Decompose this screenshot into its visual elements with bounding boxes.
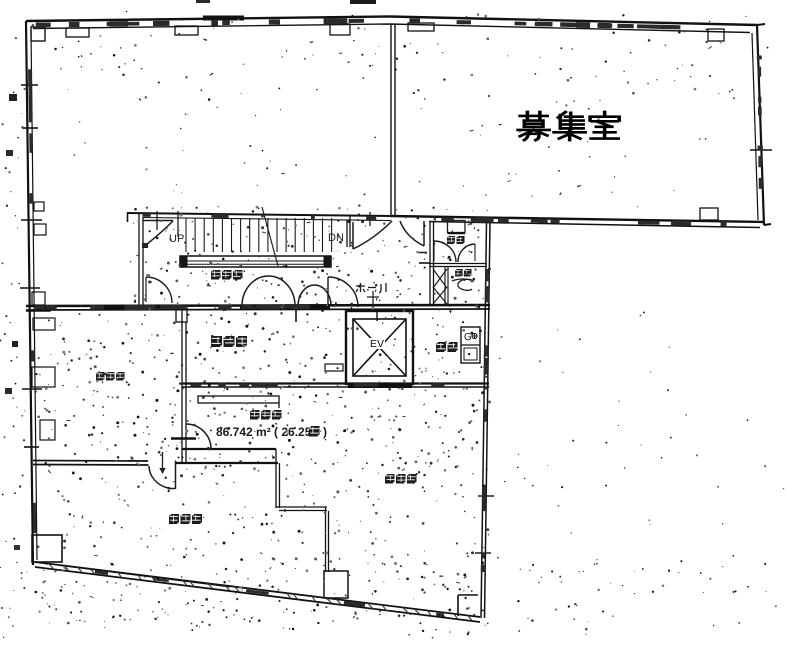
svg-text:): ) <box>323 425 327 439</box>
svg-text:EV: EV <box>370 338 384 350</box>
svg-text:86.742 m² ( 26.25: 86.742 m² ( 26.25 <box>216 425 312 439</box>
svg-text:UP: UP <box>169 233 184 245</box>
